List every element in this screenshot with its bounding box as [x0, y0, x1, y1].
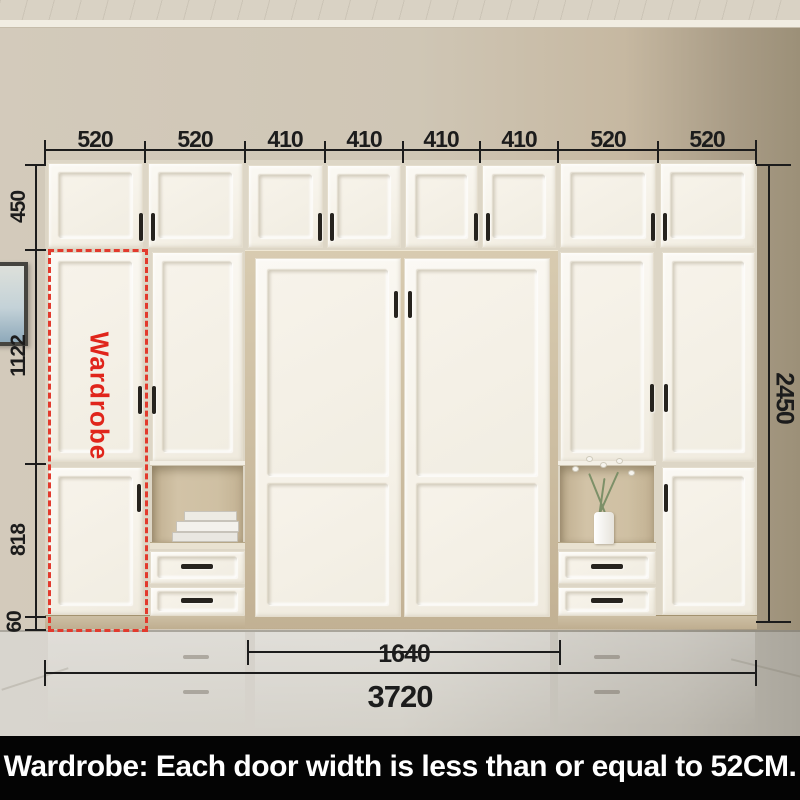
door-handle	[151, 213, 155, 241]
flower-bloom	[616, 458, 623, 464]
dimension-tick	[756, 621, 791, 623]
wardrobe-tall-door	[662, 252, 755, 462]
wardrobe-lower-door	[662, 467, 755, 615]
door-handle	[664, 484, 668, 512]
niche-shelf	[150, 461, 245, 466]
dimension-tick	[25, 463, 46, 465]
door-handle	[486, 213, 490, 241]
dimension-tick	[25, 164, 46, 166]
door-handle	[663, 213, 667, 241]
flower-bloom	[628, 470, 635, 476]
dimension-tick	[244, 141, 246, 163]
murphy-bed-door-right	[404, 258, 550, 617]
niche-shelf	[150, 542, 245, 549]
right-dim-label: 2450	[770, 372, 799, 424]
door-handle	[318, 213, 322, 241]
door-panel	[417, 484, 537, 605]
door-handle	[651, 213, 655, 241]
murphy-bed-door-left	[255, 258, 401, 617]
top-cabinet-door	[48, 163, 143, 248]
picture-art	[0, 266, 24, 342]
dimension-line-total-width	[45, 672, 757, 674]
dimension-tick	[756, 164, 791, 166]
dimension-tick	[557, 141, 559, 163]
door-panel	[259, 175, 312, 238]
door-panel	[159, 173, 232, 238]
door-panel	[163, 262, 232, 452]
dimension-tick	[25, 629, 46, 631]
top-dim-label: 410	[255, 126, 315, 153]
door-panel	[571, 262, 643, 452]
door-handle	[664, 384, 668, 412]
dimension-tick	[755, 140, 757, 164]
door-panel	[268, 484, 388, 605]
book	[172, 532, 238, 542]
bed-width-dim-label: 1640	[369, 640, 439, 669]
door-handle	[330, 213, 334, 241]
top-cabinet-door	[148, 163, 243, 248]
door-panel	[268, 270, 388, 476]
top-cabinet-door	[405, 165, 478, 248]
wardrobe-tall-door	[560, 252, 654, 462]
drawer-handle	[181, 564, 213, 569]
door-panel	[673, 262, 744, 452]
dimension-tick	[44, 140, 46, 164]
vase	[594, 512, 614, 544]
niche-shelf	[558, 461, 656, 466]
left-dim-label: 1122	[7, 335, 31, 377]
door-panel	[417, 270, 537, 476]
door-handle	[474, 213, 478, 241]
dimension-tick	[559, 640, 561, 665]
dimension-tick	[479, 141, 481, 163]
dimension-line-left	[35, 165, 37, 630]
top-dim-label: 520	[165, 126, 225, 153]
top-dim-label: 410	[489, 126, 549, 153]
dimension-tick	[44, 660, 46, 686]
top-dim-label: 520	[65, 126, 125, 153]
dimension-tick	[25, 616, 46, 618]
drawer-handle	[591, 564, 623, 569]
drawer-handle	[591, 598, 623, 603]
picture-frame	[0, 262, 28, 346]
left-dim-label: 818	[7, 524, 31, 556]
door-panel	[671, 173, 744, 238]
product-photo-diagram: Wardrobe 520 520 410 410 410 410 520 520…	[0, 0, 800, 800]
bed-door-handle	[394, 291, 398, 318]
top-cabinet-door	[482, 165, 556, 248]
dimension-tick	[247, 640, 249, 665]
dimension-tick	[402, 141, 404, 163]
door-panel	[416, 175, 467, 238]
bed-door-handle	[408, 291, 412, 318]
door-panel	[493, 175, 545, 238]
left-dim-label: 60	[3, 611, 27, 632]
top-cabinet-door	[660, 163, 755, 248]
crown-molding	[0, 20, 800, 28]
book	[184, 511, 237, 521]
dimension-tick	[25, 249, 46, 251]
dimension-tick	[324, 141, 326, 163]
flower-bloom	[572, 466, 579, 472]
top-dim-label: 410	[411, 126, 471, 153]
dimension-tick	[144, 141, 146, 163]
left-dim-label: 450	[7, 191, 31, 223]
caption-banner: Wardrobe: Each door width is less than o…	[0, 736, 800, 800]
dimension-line-top	[45, 149, 757, 151]
door-handle	[152, 386, 156, 414]
banner-text: Wardrobe: Each door width is less than o…	[0, 736, 800, 798]
door-handle	[650, 384, 654, 412]
top-cabinet-door	[327, 165, 401, 248]
dimension-tick	[755, 660, 757, 686]
drawer-handle	[181, 598, 213, 603]
book	[176, 521, 239, 532]
top-dim-label: 520	[677, 126, 737, 153]
door-panel	[338, 175, 390, 238]
door-panel	[673, 477, 744, 605]
top-dim-label: 520	[578, 126, 638, 153]
ceiling	[0, 0, 800, 22]
dimension-tick	[657, 141, 659, 163]
top-cabinet-door	[248, 165, 323, 248]
flower-bloom	[586, 456, 593, 462]
door-panel	[571, 173, 645, 238]
total-width-dim-label: 3720	[360, 679, 440, 715]
wardrobe-overlay-label: Wardrobe	[84, 332, 115, 460]
wardrobe-tall-door	[152, 252, 243, 462]
door-handle	[139, 213, 143, 241]
flower-bloom	[600, 462, 607, 468]
top-cabinet-door	[560, 163, 656, 248]
top-dim-label: 410	[334, 126, 394, 153]
door-panel	[59, 173, 132, 238]
